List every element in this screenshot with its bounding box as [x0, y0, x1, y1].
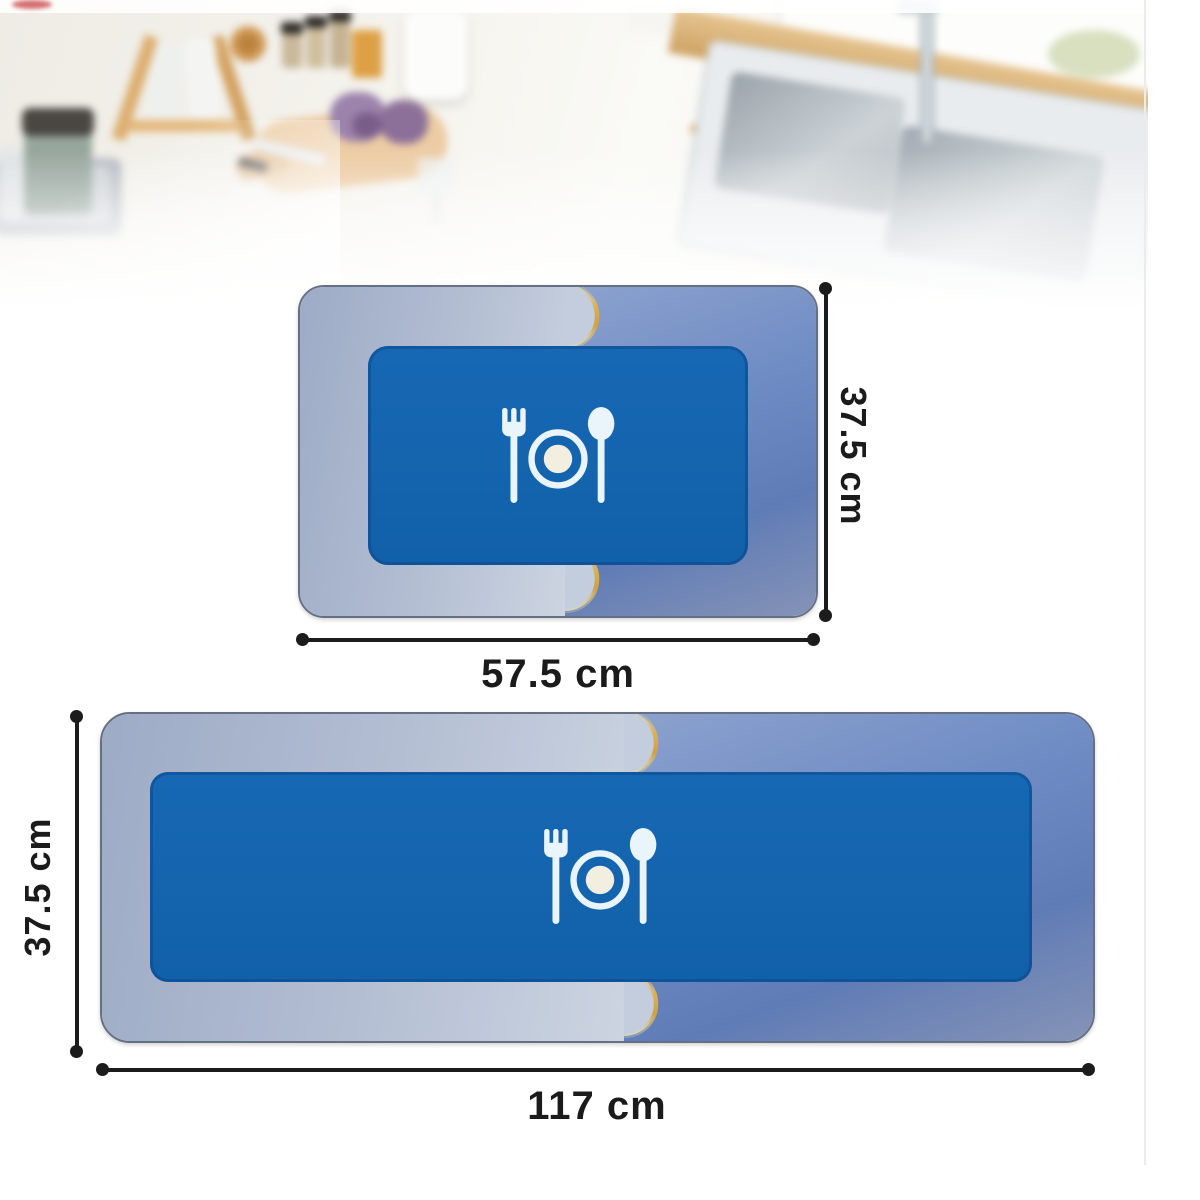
page-edge-line: [1144, 0, 1146, 1165]
spice-jar-lid: [281, 22, 303, 34]
mat-inner-panel: [150, 772, 1032, 982]
height-dimension-line: [75, 716, 79, 1052]
product-dimension-image: 37.5 cm 57.5 cm 37.5 cm 117 cm: [0, 0, 1200, 1200]
dimension-endpoint: [70, 1045, 83, 1058]
spice-jar: [282, 30, 302, 68]
dimension-endpoint: [1082, 1063, 1095, 1076]
spice-jar: [330, 18, 350, 68]
kitchen-mat-long: [100, 712, 1095, 1043]
dimension-endpoint: [807, 633, 820, 646]
plant: [1048, 30, 1140, 78]
bottle: [185, 37, 221, 119]
bottle: [148, 43, 186, 120]
long-mat-width-label: 117 cm: [397, 1084, 797, 1129]
height-dimension-line: [824, 288, 828, 616]
long-mat-height-label: 37.5 cm: [17, 797, 59, 977]
dimension-endpoint: [96, 1063, 109, 1076]
white-pitcher: [404, 12, 468, 100]
red-watermark-smudge: [12, 0, 52, 9]
fork-plate-spoon-icon: [499, 407, 617, 505]
kitchen-photo: [0, 0, 1148, 310]
dimension-endpoint: [819, 282, 832, 295]
gold-seam-bottom: [588, 972, 660, 1043]
photo-top-strip: [0, 0, 1148, 13]
purple-vegetable: [352, 112, 382, 138]
width-dimension-line: [302, 638, 814, 642]
faucet: [920, 2, 934, 142]
wooden-jar-lid: [238, 34, 258, 54]
small-mat-width-label: 57.5 cm: [358, 652, 758, 697]
spice-jar: [306, 24, 326, 68]
spice-jar-lid: [305, 16, 327, 28]
small-mat-height-label: 37.5 cm: [832, 366, 874, 546]
purple-vegetable: [380, 100, 428, 144]
kitchen-mat-small: [298, 285, 818, 618]
dimension-endpoint: [70, 710, 83, 723]
amber-jar: [352, 30, 382, 78]
mat-inner-panel: [368, 346, 748, 565]
dimension-endpoint: [819, 609, 832, 622]
width-dimension-line: [102, 1068, 1089, 1072]
fork-plate-spoon-icon: [541, 828, 659, 926]
dimension-endpoint: [296, 633, 309, 646]
